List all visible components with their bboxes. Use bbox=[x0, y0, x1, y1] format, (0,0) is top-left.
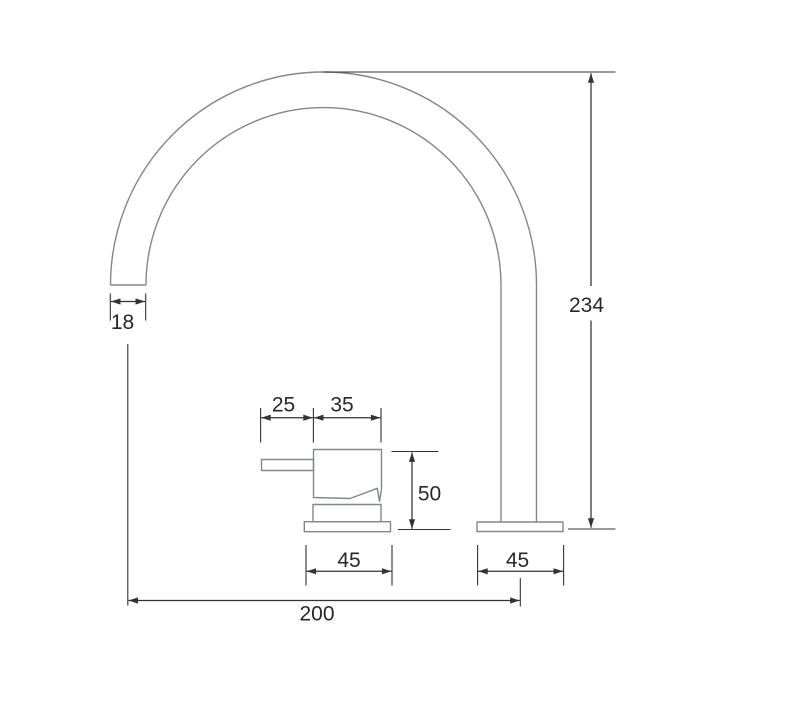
handle-lever bbox=[262, 460, 314, 471]
extension-lines bbox=[110, 72, 615, 607]
handle-base-flange bbox=[304, 522, 390, 532]
dimension-labels: 18 25 35 50 45 45 200 234 bbox=[111, 294, 605, 626]
label-handle-height: 50 bbox=[418, 483, 441, 506]
drawing-sheet: 18 25 35 50 45 45 200 234 bbox=[0, 0, 800, 713]
label-lever-overhang: 25 bbox=[272, 394, 295, 417]
label-handle-body-width: 35 bbox=[330, 394, 353, 417]
spout-base-flange bbox=[477, 522, 563, 532]
handle-cartridge bbox=[313, 505, 381, 522]
handle-body bbox=[314, 450, 382, 502]
faucet-technical-drawing: 18 25 35 50 45 45 200 234 bbox=[0, 0, 800, 713]
label-handle-base-width: 45 bbox=[337, 549, 360, 572]
label-spout-reach: 200 bbox=[299, 603, 334, 626]
faucet-outline bbox=[111, 72, 564, 532]
spout-inner-profile bbox=[146, 108, 501, 522]
label-spout-base-width: 45 bbox=[506, 549, 529, 572]
label-spout-tip-width: 18 bbox=[111, 311, 134, 334]
label-overall-height: 234 bbox=[569, 294, 604, 317]
spout-outer-profile bbox=[111, 72, 537, 522]
